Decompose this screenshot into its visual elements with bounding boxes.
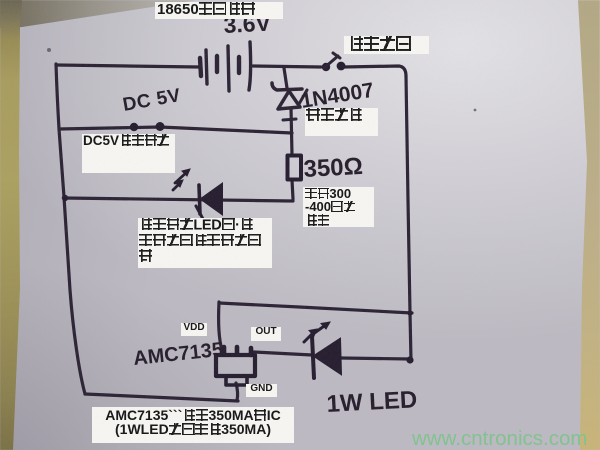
svg-text:350Ω: 350Ω: [303, 153, 364, 183]
svg-text:1W LED: 1W LED: [326, 386, 418, 418]
svg-text:DC 5V: DC 5V: [121, 85, 182, 116]
svg-text:AMC7135: AMC7135: [132, 339, 224, 370]
